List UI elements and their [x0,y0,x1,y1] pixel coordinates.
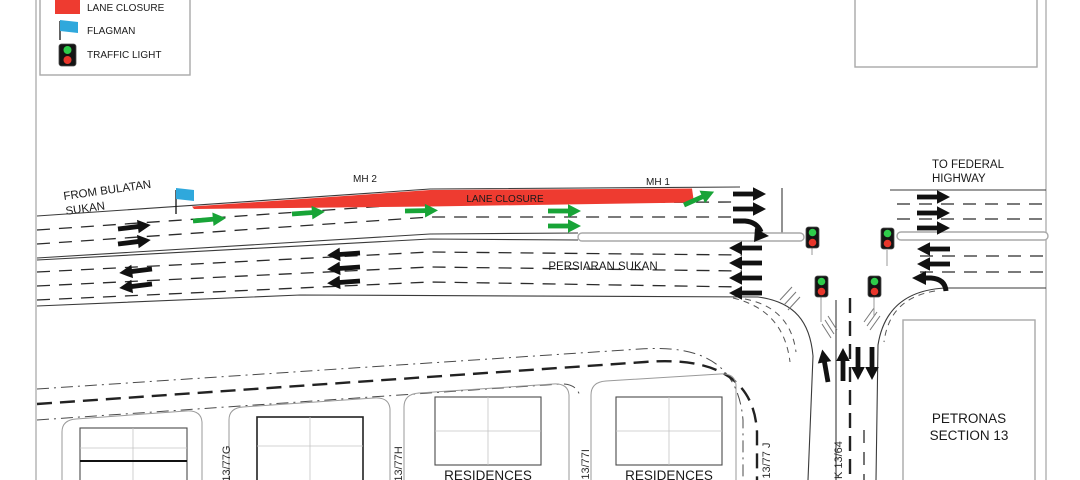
traffic-light-icon [881,228,894,249]
street-label-k1377h: K 13/77H [393,446,405,480]
side-road [733,287,880,480]
arrow-left [118,262,152,280]
arrow-right [733,187,766,201]
arrow-left [729,271,762,285]
lane-closure-band [192,189,694,210]
median-island-left [578,233,804,241]
arrow-right [917,206,950,220]
building-2 [257,417,363,480]
traffic-light-icon [806,227,819,248]
plan-drawing-canvas: LANE CLOSURE FLAGMAN TRAFFIC LIGHT TO FE… [0,0,1080,480]
arrow-left [917,242,950,256]
arrow-right [117,233,151,251]
to-federal-highway-label: TO FEDERAL HIGHWAY [932,159,1005,185]
turn-guide-line [733,298,790,362]
legend: LANE CLOSURE FLAGMAN TRAFFIC LIGHT [40,0,190,75]
from-bulatan-sukan-label: FROM BULATAN SUKAN [63,179,154,218]
to-label-line2: HIGHWAY [932,173,986,185]
green-arrow-right [548,204,581,218]
legend-label: LANE CLOSURE [87,3,165,14]
street-label-k1377j: K 13/77 J [761,443,773,480]
plot-boundary [62,411,202,480]
plot-boundary [229,398,390,480]
flagman-flag-icon [60,20,78,33]
lane-closure-swatch-icon [55,0,80,14]
lane-closure-zone: LANE CLOSURE [192,189,694,210]
arrow-left [917,257,950,271]
plot-boundary [591,374,736,480]
to-label-line1: TO FEDERAL [932,159,1005,171]
arrow-right [117,218,151,236]
petronas-label-line1: PETRONAS [932,411,1006,426]
arrow-left [327,260,361,276]
plot-boundary [404,384,569,480]
arrow-left [327,246,361,262]
chevron-marking [822,316,837,338]
traffic-management-plan: LANE CLOSURE FLAGMAN TRAFFIC LIGHT TO FE… [0,0,1080,480]
residences-label: RESIDENCES [625,468,713,480]
building-1 [80,428,187,480]
from-label-line2: SUKAN [65,200,106,217]
building-petronas: PETRONAS SECTION 13 [903,320,1035,480]
road-edge-bottom [37,295,758,306]
chevron-marking [864,308,880,330]
arrow-left [327,274,361,290]
arrow-right [917,190,950,204]
detail-box [855,0,1037,67]
green-arrow-right [548,219,581,233]
building-residences-a: RESIDENCES [435,397,541,480]
legend-label: FLAGMAN [87,26,135,37]
residences-label: RESIDENCES [444,468,532,480]
street-label-k1377g: K 13/77G [221,446,233,480]
arrow-up-left [816,348,835,383]
arrow-down [851,347,865,380]
chevron-marking [780,287,800,310]
from-label-line1: FROM BULATAN [63,179,152,203]
street-label-k1377i: K 13/77I [580,449,592,480]
traffic-light-icon [815,276,828,297]
manhole-2-label: MH 2 [353,174,377,185]
green-arrow-right [192,211,226,227]
arrow-right [733,202,766,216]
flagman-marker [176,188,194,214]
petronas-label-line2: SECTION 13 [930,428,1009,443]
persiaran-sukan-label: PERSIARAN SUKAN [548,261,657,273]
arrow-up [836,348,850,381]
traffic-light-icon [868,276,881,297]
median-island-right [897,232,1048,240]
arrow-left-turn-head [912,271,926,285]
arrow-left [118,277,152,295]
main-road-markings [37,187,1048,480]
service-road-edge [37,384,580,420]
street-labels: K 13/77G K 13/77H K 13/77I K 13/77 J K 1… [221,441,845,480]
arrow-left [729,256,762,270]
building-residences-b: RESIDENCES [616,397,722,480]
legend-label: TRAFFIC LIGHT [87,50,161,61]
arrow-down [865,347,879,380]
manhole-1-label: MH 1 [646,177,670,188]
building-plots: RESIDENCES RESIDENCES PETRONAS SECTION 1… [62,320,1035,480]
legend-item-lane-closure: LANE CLOSURE [55,0,165,14]
flagman-flag-icon [176,188,194,201]
street-label-k1364: K 13/64 [833,441,845,479]
arrow-left [729,241,762,255]
lane-closure-text: LANE CLOSURE [466,194,544,205]
